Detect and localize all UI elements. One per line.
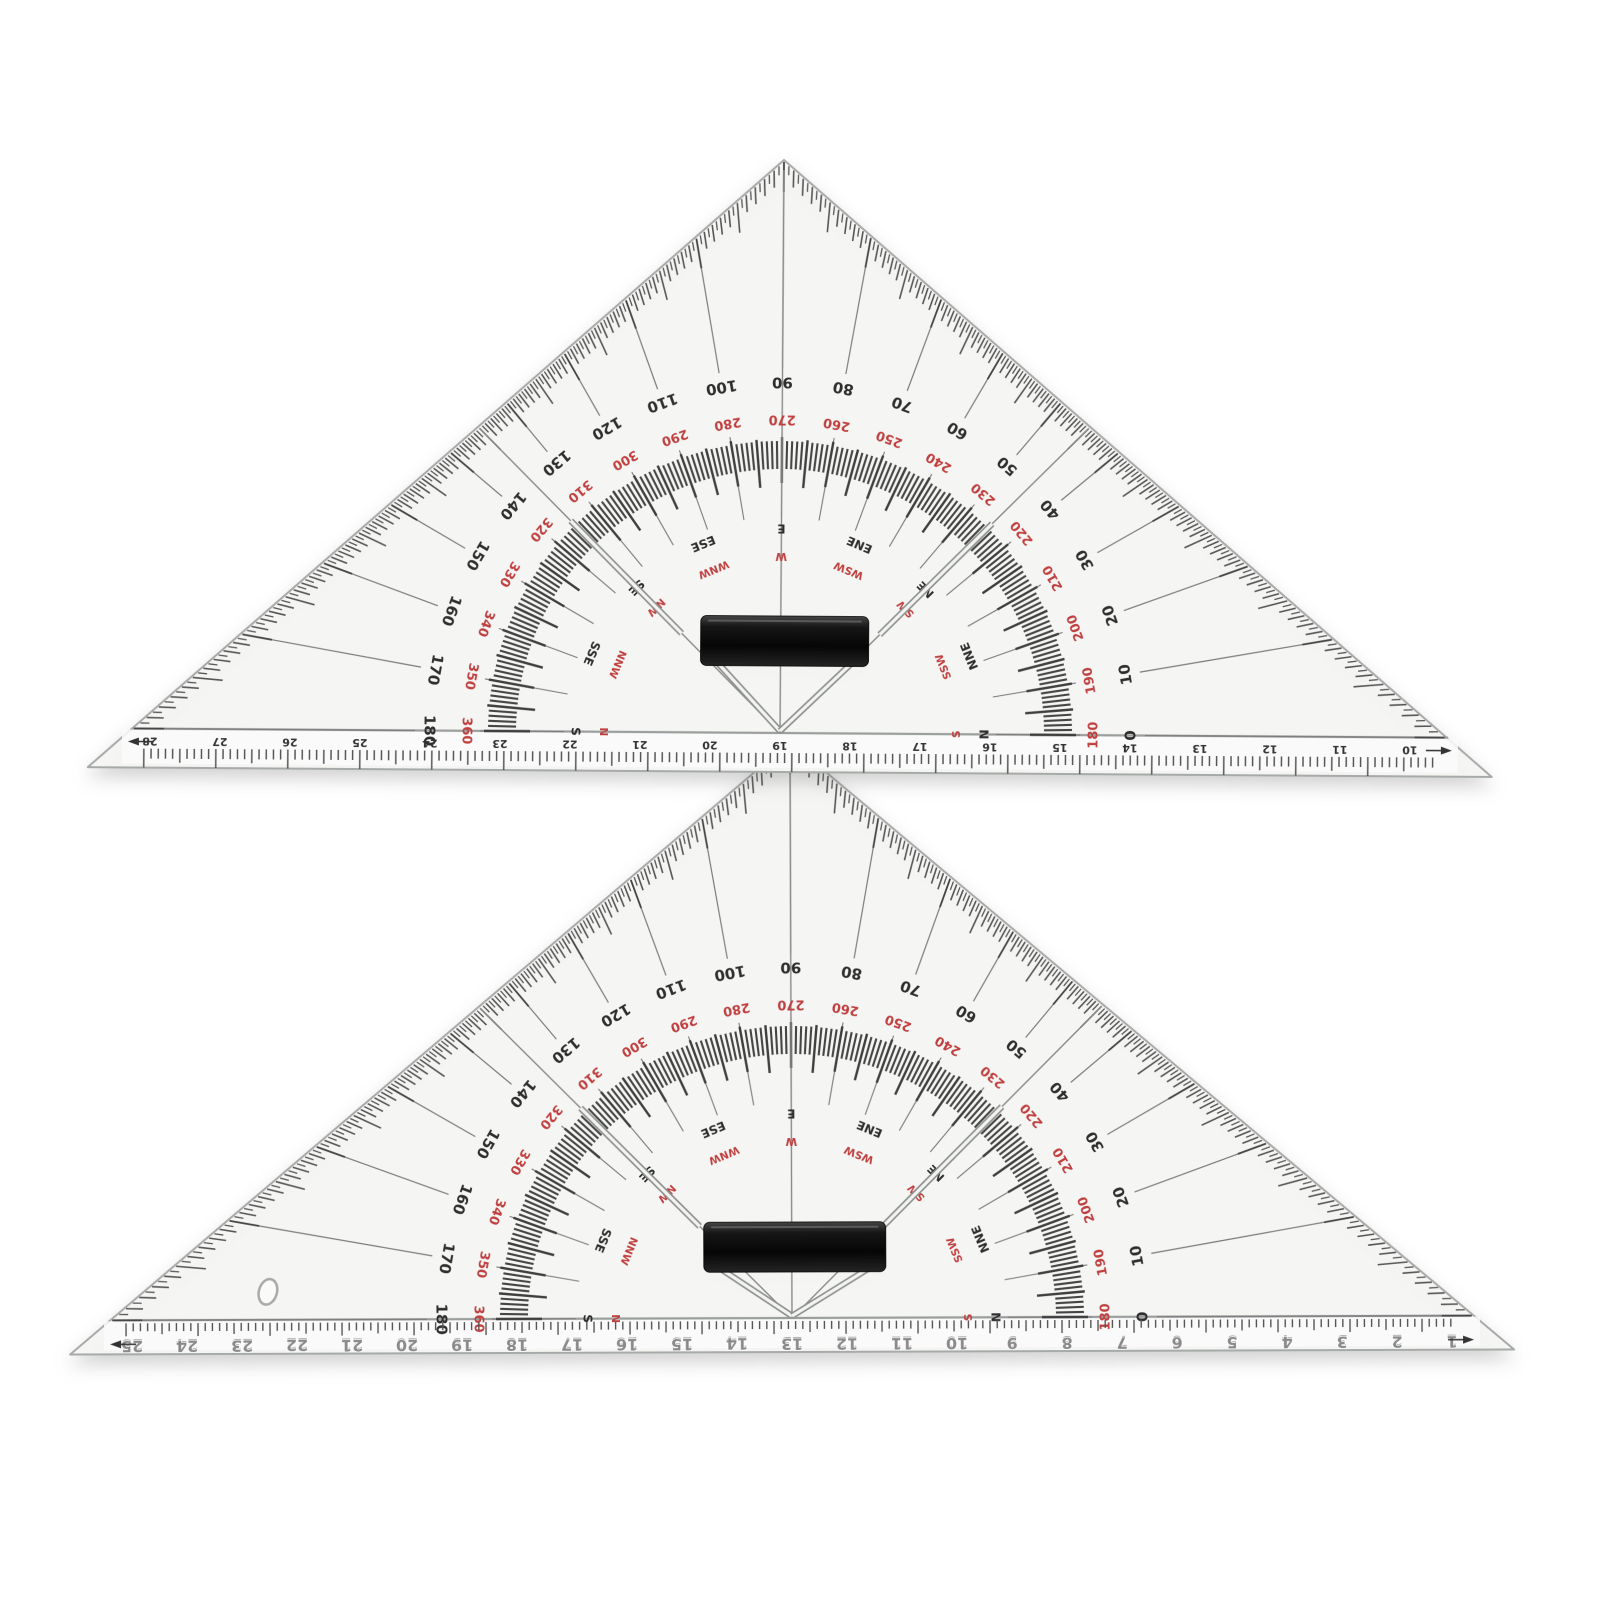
product-photo-course-triangles: 0102030405060708090100110120130140150160… [0,0,1600,1600]
svg-text:6: 6 [1171,1333,1182,1352]
svg-text:14: 14 [726,1334,748,1353]
svg-text:18: 18 [506,1335,528,1354]
svg-text:90: 90 [780,959,801,977]
scene-canvas: 0102030405060708090100110120130140150160… [0,0,1600,1600]
svg-text:W: W [775,550,787,562]
svg-text:17: 17 [561,1335,583,1354]
svg-text:1: 1 [1446,1332,1457,1351]
svg-text:7: 7 [1116,1333,1127,1352]
svg-text:270: 270 [777,996,804,1011]
svg-text:N: N [597,727,609,736]
svg-text:5: 5 [1226,1333,1237,1352]
svg-text:360: 360 [470,1306,485,1333]
svg-text:22: 22 [286,1336,308,1355]
svg-text:S: S [581,1314,595,1323]
svg-text:N: N [977,729,991,739]
svg-text:19: 19 [772,739,787,752]
svg-text:10: 10 [1402,743,1418,756]
svg-text:9: 9 [1006,1333,1017,1352]
svg-text:25: 25 [352,736,367,749]
grip-handle [700,615,868,666]
svg-text:3: 3 [1336,1332,1347,1351]
svg-text:16: 16 [982,740,998,753]
svg-text:360: 360 [458,717,473,744]
svg-text:270: 270 [769,411,796,426]
svg-text:18: 18 [842,739,857,752]
svg-text:S: S [963,1314,975,1322]
svg-text:S: S [569,727,583,736]
svg-text:E: E [777,522,785,536]
svg-text:10: 10 [946,1334,968,1353]
svg-text:80: 80 [840,962,864,983]
svg-text:10: 10 [1126,1244,1147,1268]
svg-text:21: 21 [341,1336,363,1355]
svg-text:90: 90 [772,374,793,392]
svg-text:17: 17 [912,740,927,753]
svg-text:10: 10 [1115,663,1136,687]
svg-text:2: 2 [1391,1332,1402,1351]
svg-text:180: 180 [1087,722,1102,749]
svg-text:23: 23 [492,737,507,750]
svg-text:E: E [787,1107,795,1121]
svg-text:12: 12 [836,1334,858,1353]
svg-text:12: 12 [1262,742,1277,755]
svg-text:19: 19 [451,1335,473,1354]
svg-text:8: 8 [1061,1333,1072,1352]
svg-text:20: 20 [396,1336,418,1355]
svg-text:22: 22 [562,738,577,751]
svg-text:15: 15 [1052,741,1067,754]
course-triangle-bottom: 0102030405060708090100110120130140150160… [68,739,1514,1355]
svg-text:N: N [989,1312,1003,1322]
svg-text:26: 26 [282,736,298,749]
svg-text:13: 13 [1192,742,1207,755]
svg-text:180: 180 [1099,1303,1114,1330]
svg-text:24: 24 [422,737,438,750]
svg-text:0: 0 [1121,730,1139,741]
svg-text:25: 25 [121,1337,143,1356]
svg-text:13: 13 [781,1334,803,1353]
svg-text:80: 80 [831,378,855,399]
svg-text:11: 11 [891,1334,913,1353]
grip-handle [704,1222,886,1273]
svg-text:21: 21 [632,738,647,751]
svg-text:23: 23 [231,1336,253,1355]
svg-text:15: 15 [671,1335,693,1354]
svg-text:14: 14 [1122,741,1138,754]
grip-handle-highlight [709,621,861,622]
svg-text:11: 11 [1332,743,1347,756]
svg-text:27: 27 [212,735,227,748]
svg-text:S: S [951,730,963,738]
svg-text:W: W [785,1135,797,1147]
course-triangle-top: 0102030405060708090100110120130140150160… [88,155,1496,777]
svg-text:20: 20 [702,738,718,751]
grip-handle-highlight [712,1227,878,1228]
svg-text:16: 16 [616,1335,638,1354]
svg-text:4: 4 [1281,1332,1292,1351]
svg-text:24: 24 [176,1336,198,1355]
